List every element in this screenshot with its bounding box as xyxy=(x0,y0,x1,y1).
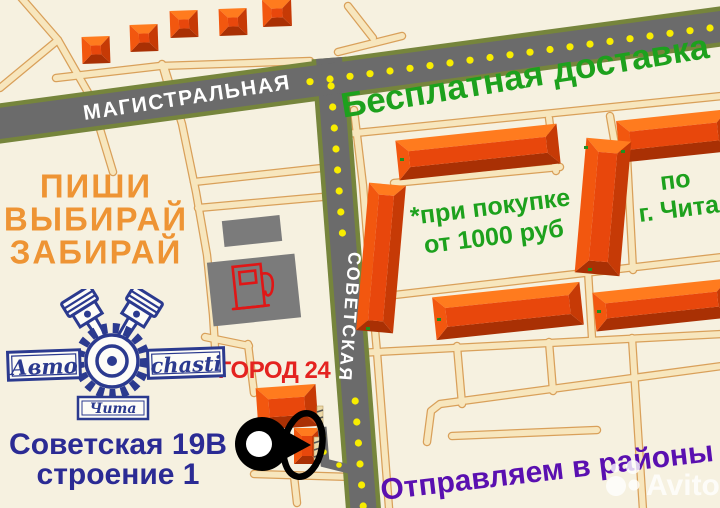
map-canvas: МАГИСТРАЛЬНАЯ СОВЕТСКАЯ Бесплатная доста… xyxy=(0,0,720,508)
cta-line-2: ВЫБИРАЙ xyxy=(4,203,188,236)
avito-watermark-text: Avito xyxy=(646,469,720,502)
building xyxy=(262,0,292,27)
building xyxy=(170,10,199,38)
avtochasti-logo: Авто chasti Чита xyxy=(2,289,228,431)
address-line-1: Советская 19В xyxy=(9,430,227,460)
building xyxy=(616,109,720,162)
cta-line-1: ПИШИ xyxy=(4,170,188,203)
building xyxy=(592,278,720,331)
logo-text-right: chasti xyxy=(150,351,222,378)
avito-dots-icon xyxy=(606,460,640,496)
logo-text-city: Чита xyxy=(90,401,137,417)
address-line-2: строение 1 xyxy=(9,460,227,490)
store-label-gorod24: ГОРОД 24 xyxy=(218,358,330,384)
building xyxy=(219,8,248,36)
city-text: по г. Чита xyxy=(633,162,720,229)
building xyxy=(575,138,632,276)
cta-line-3: ЗАБИРАЙ xyxy=(4,236,188,269)
building xyxy=(130,24,159,52)
cta-text: ПИШИ ВЫБИРАЙ ЗАБИРАЙ xyxy=(4,170,188,269)
building xyxy=(82,36,111,64)
address-text: Советская 19В строение 1 xyxy=(9,430,227,490)
gear-icon xyxy=(79,328,145,394)
avito-watermark: Avito xyxy=(604,455,720,503)
logo-text-left: Авто xyxy=(8,353,78,380)
